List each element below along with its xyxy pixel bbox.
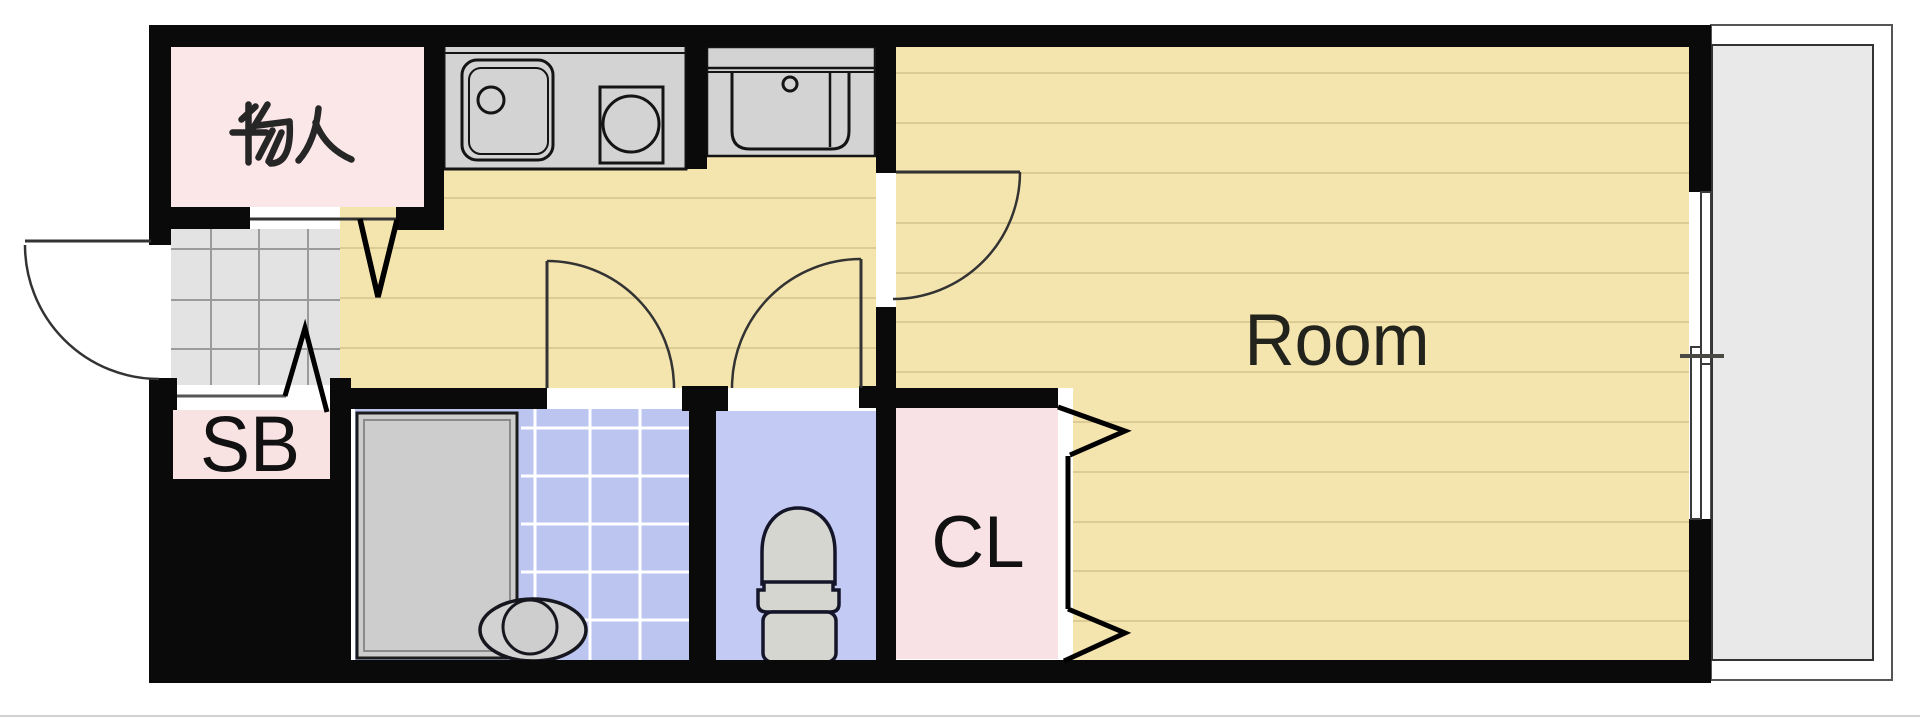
svg-text:CL: CL <box>931 502 1024 583</box>
svg-text:SB: SB <box>200 400 300 488</box>
svg-text:Room: Room <box>1245 300 1430 381</box>
